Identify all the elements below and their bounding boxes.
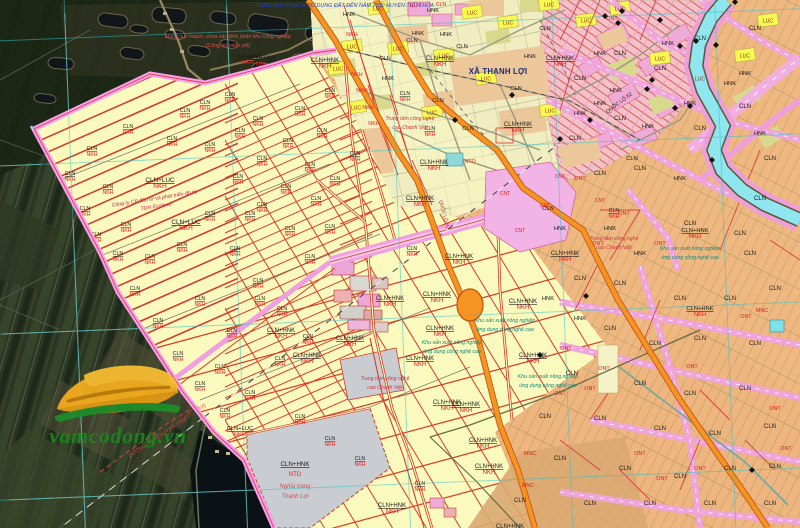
svg-text:NKH: NKH [330,182,341,188]
svg-text:CLN: CLN [554,456,566,462]
svg-text:Trung tâm công nghệ: Trung tâm công nghệ [386,116,435,122]
svg-text:NTD: NTD [289,472,302,478]
svg-text:HNK: HNK [427,8,439,14]
svg-text:NKH: NKH [205,217,216,223]
svg-text:CLN: CLN [704,501,716,507]
svg-text:CLN: CLN [604,326,616,332]
svg-text:Khu sản xuất nông nghiệp: Khu sản xuất nông nghiệp [422,339,482,346]
svg-text:NKH: NKH [233,180,244,186]
svg-text:CLN: CLN [574,276,586,282]
svg-text:NKH: NKH [559,257,572,263]
svg-text:NKH: NKH [400,97,411,103]
svg-text:NKH: NKH [225,98,236,104]
svg-text:NKH: NKH [87,152,98,158]
svg-text:NKH: NKH [414,362,427,368]
svg-text:MNC: MNC [522,483,534,489]
svg-text:CLN: CLN [769,286,781,292]
svg-text:LUC: LUC [351,106,362,112]
svg-text:CLN: CLN [724,466,736,472]
svg-text:NKH: NKH [384,302,397,308]
svg-text:NKH: NKH [431,298,444,304]
svg-text:CLN: CLN [744,251,756,257]
svg-text:HNK: HNK [604,226,616,232]
svg-text:HNK: HNK [382,76,394,82]
svg-text:CLN: CLN [614,116,626,122]
svg-text:NKH: NKH [173,357,184,363]
svg-text:LUC: LUC [439,54,450,60]
svg-text:CLN: CLN [594,171,606,177]
svg-text:NKH: NKH [277,312,288,318]
svg-text:NKH: NKH [234,432,246,438]
svg-text:ONT: ONT [694,466,706,472]
svg-text:CLN: CLN [456,44,468,50]
svg-text:LUC: LUC [655,57,666,63]
svg-text:NKH: NKH [689,234,701,240]
svg-text:HNK: HNK [754,131,766,137]
svg-text:NKH: NKH [180,114,191,120]
svg-text:NKH: NKH [325,230,336,236]
svg-text:NKH: NKH [283,144,294,150]
svg-text:NKH: NKH [325,442,336,448]
svg-text:LUC: LUC [467,11,478,17]
svg-text:ONT: ONT [740,314,752,320]
svg-text:NKH: NKH [281,190,292,196]
svg-text:CLN: CLN [614,281,626,287]
svg-text:HNK: HNK [524,54,536,60]
svg-text:NKH: NKH [295,112,306,118]
svg-text:NKH: NKH [460,408,473,414]
svg-text:CLN: CLN [739,386,751,392]
svg-text:CNT: CNT [500,191,510,197]
svg-text:HNK: HNK [343,12,355,18]
svg-text:MNC: MNC [756,308,768,314]
svg-text:HNK: HNK [739,71,751,77]
svg-text:NKH: NKH [65,177,76,183]
svg-text:CLN: CLN [654,66,666,72]
svg-text:CLN: CLN [764,156,776,162]
svg-text:NKH: NKH [275,334,288,340]
svg-text:NKH: NKH [253,122,264,128]
svg-text:ONT: ONT [606,16,618,22]
svg-text:NKH: NKH [205,148,216,154]
svg-text:NKH: NKH [554,62,567,68]
svg-text:ONT: ONT [618,211,630,217]
svg-text:NKH: NKH [130,292,141,298]
svg-text:ứng dụng công nghệ cao: ứng dụng công nghệ cao [476,327,534,333]
svg-text:CLN: CLN [539,414,551,420]
svg-text:NKH: NKH [407,252,418,258]
svg-text:ONT: ONT [598,366,610,372]
svg-text:NKH: NKH [305,168,316,174]
svg-text:LUC: LUC [373,7,384,13]
svg-text:NKH: NKH [195,302,206,308]
svg-text:NKH: NKH [434,332,447,338]
svg-text:CLN: CLN [654,426,666,432]
svg-text:NKH: NKH [386,509,399,515]
svg-text:CLN: CLN [644,501,656,507]
svg-text:NKH: NKH [311,202,322,208]
svg-text:HNK: HNK [674,176,686,182]
svg-text:NKH: NKH [415,487,426,493]
svg-text:CLN: CLN [724,296,736,302]
svg-text:ONT: ONT [769,406,781,412]
svg-text:NKH: NKH [275,362,286,368]
svg-text:CLN: CLN [634,381,646,387]
svg-text:HNK: HNK [412,31,424,37]
svg-text:ONT: ONT [780,446,792,452]
svg-text:HNK: HNK [634,251,646,257]
svg-text:(Công bố niêm yết): (Công bố niêm yết) [206,42,250,49]
svg-text:NKH: NKH [301,359,314,365]
svg-text:LUC: LUC [763,19,774,25]
svg-text:CLN: CLN [432,98,444,104]
svg-text:LUC: LUC [581,19,592,25]
svg-text:cao Chanh Việt: cao Chanh Việt [367,385,403,391]
svg-text:CLN: CLN [462,126,474,132]
svg-text:CLN: CLN [626,156,638,162]
svg-text:NKH: NKH [428,166,441,172]
svg-text:NKH: NKH [235,134,246,140]
svg-text:CNT: CNT [540,203,550,209]
svg-text:NKH: NKH [368,121,379,127]
svg-text:HNK: HNK [662,41,674,47]
svg-text:CLN: CLN [594,416,606,422]
svg-text:HNK: HNK [594,101,606,107]
svg-text:Thạnh Lợi: Thạnh Lợi [282,494,310,500]
svg-text:NKH: NKH [319,64,332,70]
svg-text:Nghĩa trang: Nghĩa trang [279,484,311,490]
svg-text:CLN: CLN [379,56,391,62]
svg-text:CLN: CLN [634,166,646,172]
svg-text:XÃ THẠNH LỢI: XÃ THẠNH LỢI [469,67,527,76]
svg-text:ứng dụng công nghệ cao: ứng dụng công nghệ cao [519,383,577,389]
svg-text:CLN: CLN [754,196,766,202]
svg-text:TỔNG QUY HOẠCH SỬ DỤNG ĐẤT ĐẾN: TỔNG QUY HOẠCH SỬ DỤNG ĐẤT ĐẾN NĂM 2030 … [256,1,434,9]
svg-text:LUC: LUC [347,45,358,51]
svg-text:ONT: ONT [554,391,566,397]
svg-text:NKH: NKH [425,132,436,138]
svg-text:CLN: CLN [749,26,761,32]
svg-text:HNK: HNK [542,296,554,302]
svg-text:HNK: HNK [594,51,606,57]
svg-text:NKH: NKH [351,72,362,78]
svg-text:CNT: CNT [555,174,565,180]
svg-text:CLN: CLN [619,466,631,472]
svg-text:NKH: NKH [350,157,361,163]
svg-text:ONT: ONT [634,451,646,457]
svg-text:CLN: CLN [649,341,661,347]
svg-text:NKH: NKH [346,32,357,38]
svg-text:HNK: HNK [554,226,566,232]
svg-text:NKH: NKH [694,312,706,318]
svg-text:LUC: LUC [333,67,344,73]
svg-text:NKH: NKH [414,202,427,208]
svg-text:HNK: HNK [574,316,586,322]
svg-text:NKH: NKH [179,225,193,232]
svg-text:NKH: NKH [215,370,226,376]
svg-text:CLN: CLN [674,296,686,302]
svg-text:CLN: CLN [584,501,596,507]
svg-text:NKH: NKH [355,462,366,468]
svg-text:ONT: ONT [574,176,586,182]
svg-text:CLN: CLN [410,3,421,9]
svg-text:HNK: HNK [724,81,736,87]
svg-text:LUC: LUC [427,111,438,117]
svg-text:NKH: NKH [325,94,336,100]
svg-text:HNK: HNK [574,111,586,117]
svg-text:Trung tâm công nghệ: Trung tâm công nghệ [361,376,410,382]
svg-text:ONT: ONT [654,241,666,247]
svg-text:CLN: CLN [539,26,551,32]
svg-text:ứng dụng công nghệ cao: ứng dụng công nghệ cao [423,349,481,355]
svg-text:NKH: NKH [153,324,164,330]
svg-text:NKH: NKH [113,257,124,263]
svg-text:NTO: NTO [464,159,475,165]
svg-text:CLN: CLN [674,474,686,480]
svg-text:CLN: CLN [566,371,578,377]
svg-text:NKH: NKH [257,208,268,214]
svg-text:CLN: CLN [734,231,746,237]
svg-text:LUC: LUC [695,77,706,83]
svg-text:NKH: NKH [242,60,254,66]
svg-text:NKH: NKH [245,396,256,402]
svg-text:NKH: NKH [303,340,314,346]
svg-text:NKH: NKH [453,260,466,266]
svg-text:NKH: NKH [356,88,367,94]
svg-text:NKH: NKH [145,260,156,266]
svg-text:CNT: CNT [595,198,605,204]
svg-text:HNK: HNK [642,124,654,130]
svg-text:NKH: NKH [527,359,540,365]
svg-text:CLN+HNK: CLN+HNK [280,461,310,468]
svg-text:Đang quy hoạch, chưa xác định: Đang quy hoạch, chưa xác định phân khu c… [165,34,291,40]
svg-text:NKH: NKH [295,420,306,426]
svg-text:NKH: NKH [483,470,496,476]
svg-text:NKH: NKH [195,387,206,393]
svg-text:NKH: NKH [230,252,241,258]
svg-text:NKH: NKH [167,142,178,148]
svg-text:LUC: LUC [481,77,492,83]
svg-text:NKH: NKH [245,217,256,223]
svg-text:HNK: HNK [440,32,452,38]
svg-text:LUC: LUC [393,47,404,53]
svg-text:NKH: NKH [512,128,525,134]
svg-text:CLN: CLN [574,76,586,82]
svg-text:cao Chanh Việt: cao Chanh Việt [392,125,428,131]
svg-text:NKH: NKH [200,106,211,112]
svg-text:CLN: CLN [769,464,781,470]
svg-text:NKH: NKH [434,62,447,68]
svg-text:CLN: CLN [510,86,522,92]
svg-text:HNK: HNK [610,88,622,94]
svg-text:NKH: NKH [153,183,167,190]
svg-text:CLN: CLN [514,498,526,504]
svg-text:NKH: NKH [257,162,268,168]
svg-text:NKH: NKH [344,342,357,348]
svg-text:CLN: CLN [764,424,776,430]
svg-text:MNC: MNC [524,451,536,457]
svg-text:vamcodong.vn: vamcodong.vn [49,423,186,448]
svg-text:NKH: NKH [123,130,134,136]
svg-text:CLN: CLN [749,341,761,347]
svg-text:CLN: CLN [694,126,706,132]
svg-text:NKH: NKH [285,232,296,238]
svg-text:ONT: ONT [686,364,698,370]
svg-text:CLN: CLN [764,501,776,507]
svg-text:Khu sản xuất nông nghiệp: Khu sản xuất nông nghiệp [660,245,720,252]
svg-text:NKH: NKH [253,284,264,290]
svg-text:NKH: NKH [317,134,328,140]
svg-text:NKH: NKH [305,260,316,266]
svg-text:CNT: CNT [515,228,525,234]
svg-text:CLN: CLN [709,431,721,437]
svg-text:CLN: CLN [684,221,696,227]
svg-text:NKH: NKH [121,228,132,234]
svg-text:NKH: NKH [103,190,114,196]
svg-text:ONT: ONT [592,241,604,247]
svg-text:ONT: ONT [656,476,668,482]
svg-text:NKH: NKH [227,334,238,340]
svg-text:NKH: NKH [220,414,231,420]
svg-text:CLN: CLN [614,51,626,57]
svg-text:NKH: NKH [177,248,188,254]
svg-text:CLN: CLN [569,136,581,142]
svg-text:LUC: LUC [545,109,556,115]
svg-text:CLN+HNK: CLN+HNK [496,524,524,528]
svg-text:ứng dụng công nghệ cao: ứng dụng công nghệ cao [661,255,719,261]
svg-text:NKH: NKH [477,444,490,450]
svg-text:ONT: ONT [560,346,572,352]
svg-text:NKH: NKH [362,105,373,111]
svg-text:Khu sản xuất nông nghiệp: Khu sản xuất nông nghiệp [475,317,535,324]
svg-text:CLN: CLN [436,2,447,8]
svg-text:NKH: NKH [441,406,454,412]
svg-text:NKH: NKH [255,302,266,308]
svg-text:NKH: NKH [517,305,530,311]
svg-text:CLN: CLN [406,38,418,44]
svg-text:LUC: LUC [740,54,751,60]
svg-text:ONT: ONT [584,386,596,392]
svg-text:CLN: CLN [739,104,751,110]
svg-text:LUC: LUC [503,21,514,27]
svg-text:LUC: LUC [544,3,555,9]
svg-text:CLN: CLN [684,391,696,397]
svg-text:CLN: CLN [694,336,706,342]
